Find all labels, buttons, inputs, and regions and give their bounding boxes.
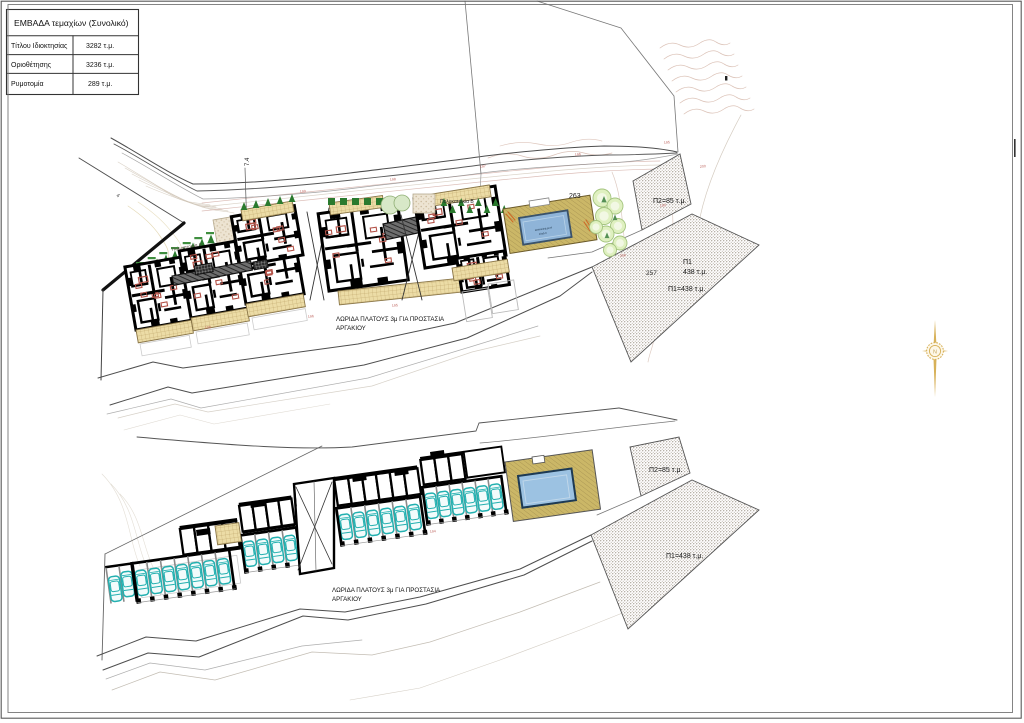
svg-text:ΛΩΡΙΔΑ ΠΛΑΤΟΥΣ 3μ ΓΙΑ ΠΡΟΣΤΑΣ: ΛΩΡΙΔΑ ΠΛΑΤΟΥΣ 3μ ΓΙΑ ΠΡΟΣΤΑΣΙΑ	[332, 587, 441, 594]
svg-text:Πολυκατοικία Β: Πολυκατοικία Β	[440, 199, 474, 205]
svg-text:257: 257	[646, 270, 657, 277]
svg-text:289 τ.μ.: 289 τ.μ.	[88, 81, 112, 88]
svg-text:Π1=438 τ.μ.: Π1=438 τ.μ.	[666, 553, 703, 560]
svg-text:196: 196	[575, 152, 581, 157]
svg-text:ΛΩΡΙΔΑ ΠΛΑΤΟΥΣ 3μ ΓΙΑ ΠΡΟΣΤΑΣ: ΛΩΡΙΔΑ ΠΛΑΤΟΥΣ 3μ ΓΙΑ ΠΡΟΣΤΑΣΙΑ	[336, 316, 445, 323]
svg-text:Π2=85 τ.μ.: Π2=85 τ.μ.	[653, 198, 687, 205]
svg-text:Π2=85 τ.μ.: Π2=85 τ.μ.	[649, 467, 683, 474]
svg-text:ΑΡΓΑΚΙΟΥ: ΑΡΓΑΚΙΟΥ	[332, 596, 362, 603]
svg-text:198: 198	[205, 325, 211, 330]
svg-text:3282 τ.μ.: 3282 τ.μ.	[86, 43, 114, 50]
svg-text:194: 194	[430, 529, 436, 534]
svg-text:195: 195	[392, 303, 398, 308]
svg-text:Ρυμοτομία: Ρυμοτομία	[11, 80, 44, 88]
svg-text:200: 200	[700, 164, 706, 169]
svg-text:Π1=438 τ.μ.: Π1=438 τ.μ.	[668, 286, 705, 293]
svg-text:ΕΜΒΑΔΑ τεμαχίων (Συνολικό): ΕΜΒΑΔΑ τεμαχίων (Συνολικό)	[14, 18, 129, 28]
svg-text:199: 199	[660, 203, 666, 208]
svg-text:3236 τ.μ.: 3236 τ.μ.	[86, 62, 114, 69]
svg-text:Π1: Π1	[683, 259, 692, 266]
svg-text:197: 197	[480, 164, 486, 169]
svg-text:195: 195	[664, 140, 670, 145]
svg-text:Τίτλου Ιδιοκτησίας: Τίτλου Ιδιοκτησίας	[11, 42, 68, 50]
svg-text:196: 196	[308, 314, 314, 319]
svg-text:258: 258	[620, 253, 626, 258]
svg-text:199: 199	[300, 189, 306, 194]
svg-text:ΑΡΓΑΚΙΟΥ: ΑΡΓΑΚΙΟΥ	[336, 325, 366, 332]
svg-text:Οριοθέτησης: Οριοθέτησης	[11, 61, 52, 69]
svg-text:438 τ.μ.: 438 τ.μ.	[683, 269, 707, 276]
svg-text:198: 198	[390, 177, 396, 182]
svg-text:263: 263	[569, 193, 581, 200]
svg-text:7.4: 7.4	[245, 157, 251, 166]
svg-text:N: N	[933, 350, 937, 356]
